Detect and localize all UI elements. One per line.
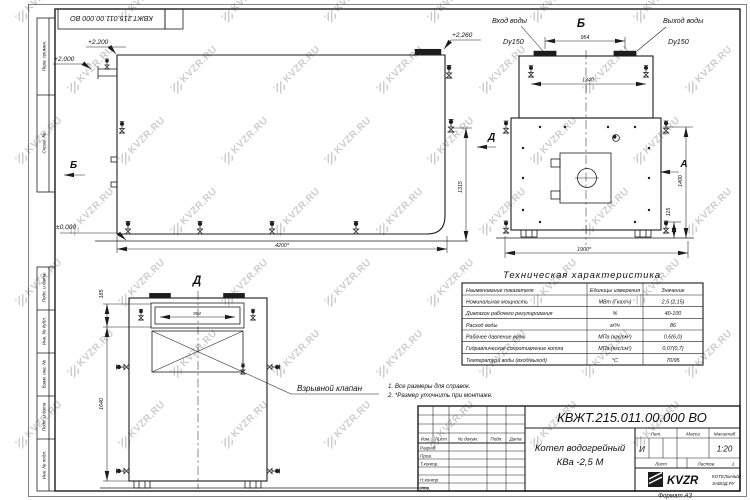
company-logo: KVZR КОТЕЛЬНЫЙ ЗАВОД.РУ (648, 472, 742, 487)
rev-header-data: Дата (508, 437, 522, 442)
brand-sub2: ЗАВОД.РУ (712, 481, 736, 486)
lit-label: Лит. (650, 432, 662, 437)
elev-2260: +2,260 (452, 32, 473, 39)
sheets-label: Листов (697, 462, 715, 467)
inlet-size: Dy150 (503, 37, 524, 46)
sign-prov: Пров. (420, 454, 432, 459)
col-header-value: Значение (661, 288, 684, 294)
dim-1315: 1315 (458, 181, 464, 193)
title-block: Изм. Лист № докум. Подп. Дата Разраб. Пр… (418, 406, 742, 500)
outlet-size: Dy150 (668, 37, 689, 46)
note-1: 1. Все размеры для справок. (388, 383, 471, 390)
scale-value: 1:20 (717, 445, 733, 454)
product-name-line2: КВа -2,5 М (557, 457, 604, 468)
dim-954-front: 954 (193, 311, 201, 316)
elev-2000: +2,000 (54, 56, 75, 63)
sign-nkontr: Н.контр. (420, 478, 439, 483)
format-label: Формат А3 (658, 493, 692, 500)
stamp-perv-primen: Перв. примен. (42, 41, 47, 72)
elev-0000: ±0,000 (56, 224, 76, 231)
stamp-podp-data-2: Подп. и дата (42, 402, 47, 431)
rev-header-dokum: № докум. (458, 437, 478, 442)
col-header-name: Наименование показателя (466, 288, 534, 294)
spec-row-unit: °С (612, 358, 618, 364)
side-view (95, 49, 468, 241)
spec-row-name: Номинальная мощность (466, 300, 528, 306)
spec-row-name: Гидравлическое сопротивление котла (466, 346, 563, 352)
lit-value: И (639, 445, 645, 454)
dim-115: 115 (666, 208, 672, 216)
note-2: 2. *Размер уточнить при монтаже. (387, 392, 493, 399)
inlet-label: Вход воды (492, 16, 528, 25)
col-header-units: Единицы измерения (590, 288, 640, 294)
spec-row-value: 40-100 (665, 311, 682, 317)
top-doc-number: КВЖТ.215.011.00.000 ВО (70, 14, 153, 23)
spec-row-value: 70/95 (666, 358, 679, 364)
dim-4200: 4200* (275, 243, 290, 249)
stamp-inv-dubl: Инв. № дубл. (42, 317, 47, 345)
sheets-value: 1 (732, 462, 735, 467)
sign-utv: Утв. (420, 485, 430, 490)
rev-header-podp: Подп. (490, 437, 502, 442)
elev-2200: +2,200 (88, 39, 109, 46)
spec-row-value: 0,6(6,0) (664, 335, 682, 341)
top-view-title: Б (577, 18, 585, 30)
view-label-d: Д (487, 132, 495, 143)
spec-row-name: Диапазон рабочего регулирования (465, 311, 553, 317)
spec-table-title: Техническая характеристика (503, 270, 661, 281)
spec-row-value: 0,07(0,7) (662, 346, 683, 352)
sign-razrab: Разраб. (420, 446, 437, 451)
spec-row-unit: МВт (Гкал/ч) (599, 300, 632, 306)
stamp-vzam-inv: Взам. инв. № (42, 360, 47, 388)
side-view-dimensions: 4200* 1315 +2,200 +2,000 ±0,000 +2,260 Б… (53, 32, 496, 253)
boiler-outline (117, 55, 445, 234)
spec-row-name: Расход воды (466, 323, 497, 329)
spec-row-unit: м³/ч (610, 323, 620, 329)
left-frame-stamps: Перв. примен. Справ. № Подп. и дата Инв.… (37, 18, 55, 491)
section-label-b: Б (70, 160, 77, 171)
top-view-dimensions: Вход воды Dy150 Выход воды Dy150 954 134… (492, 16, 704, 258)
outlet-label: Выход воды (663, 16, 704, 25)
sheet-label: Лист (654, 462, 667, 467)
spec-row-name: Температура воды (вход/выход) (466, 358, 547, 364)
stamp-inv-podl: Инв. № подл. (42, 451, 47, 480)
spec-row-name: Рабочее давление воды (466, 335, 525, 341)
rev-header-list: Лист (434, 437, 447, 442)
doc-number: КВЖТ.215.011.00.000 ВО (557, 410, 707, 425)
top-doc-stamp: КВЖТ.215.011.00.000 ВО (58, 9, 183, 29)
mass-label: Масса (686, 432, 700, 437)
spec-row-unit: % (613, 311, 618, 317)
spec-row-unit: МПа (кгс/см²) (598, 335, 632, 341)
front-view-title: Д (192, 275, 201, 287)
section-label-a: А (679, 159, 687, 170)
scale-label: Масштаб (714, 432, 736, 437)
drawing-sheet: Перв. примен. Справ. № Подп. и дата Инв.… (0, 0, 750, 500)
notes: 1. Все размеры для справок. 2. *Размер у… (387, 383, 493, 399)
spec-row-unit: МПа (кгс/см²) (598, 346, 632, 352)
sign-tkontr: Т.контр. (420, 462, 439, 467)
dim-954-top: 954 (581, 35, 590, 41)
rev-header-izm: Изм. (421, 437, 431, 442)
spec-row-value: 86 (670, 323, 676, 329)
product-name-line1: Котел водогрейный (535, 443, 626, 454)
front-view: Д 954 (100, 275, 428, 489)
stamp-podp-data-1: Подп. и дата (42, 273, 47, 302)
dim-1640: 1640 (99, 398, 105, 410)
brand-name: KVZR (667, 475, 699, 487)
dim-185: 185 (99, 290, 105, 299)
dim-1400: 1400 (678, 175, 684, 187)
explosion-valve-callout: Взрывной клапан (297, 384, 363, 393)
brand-sub1: КОТЕЛЬНЫЙ (712, 472, 742, 479)
dim-1900: 1900* (577, 247, 592, 253)
dim-1340: 1340 (582, 78, 594, 84)
top-view: Б (496, 18, 694, 245)
stamp-sprav-no: Справ. № (42, 133, 47, 154)
spec-table: Техническая характеристика Наименование … (462, 270, 703, 365)
spec-row-value: 2,5 (2,15) (661, 300, 685, 306)
